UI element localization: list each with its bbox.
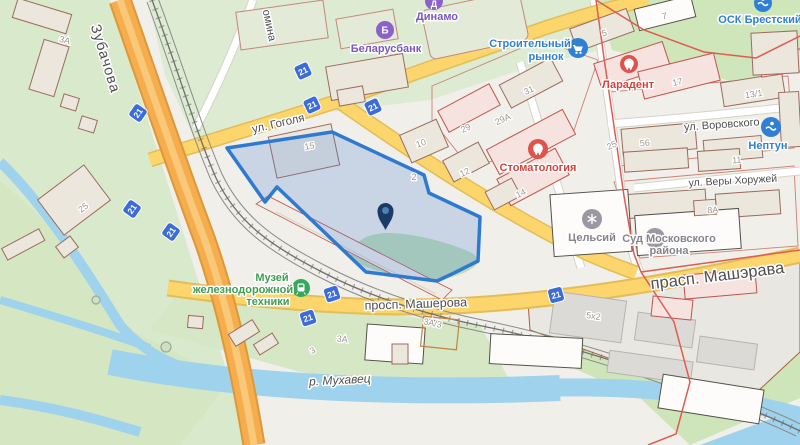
svg-text:ОСК Брестский: ОСК Брестский (718, 14, 800, 26)
svg-text:Нептун: Нептун (748, 140, 787, 152)
svg-text:Ларадент: Ларадент (602, 79, 655, 91)
svg-text:железнодорожной: железнодорожной (192, 284, 293, 296)
tooth-icon (528, 139, 548, 159)
snowflake-icon (582, 209, 602, 229)
stadium-icon: Д (431, 0, 438, 9)
svg-text:Беларусбанк: Беларусбанк (351, 43, 422, 55)
building-number: 8А (707, 205, 719, 216)
building-number: 3А (336, 334, 348, 345)
svg-text:техники: техники (246, 296, 289, 308)
building-number: 17 (671, 76, 683, 88)
svg-text:Динамо: Динамо (416, 11, 458, 23)
svg-text:района: района (649, 245, 689, 257)
building-number: 15 (304, 140, 316, 152)
svg-text:Б: Б (381, 26, 388, 37)
svg-text:Стоматология: Стоматология (500, 162, 577, 174)
building-number: 5х2 (586, 310, 602, 322)
svg-text:Суд Московского: Суд Московского (622, 233, 716, 245)
dental-icon (620, 55, 638, 73)
svg-text:Строительный: Строительный (489, 38, 571, 50)
market-cart-icon (568, 38, 588, 58)
building-number: 56 (639, 138, 650, 149)
svg-text:Цельсий: Цельсий (568, 232, 616, 244)
train-icon (292, 279, 310, 297)
map-canvas[interactable]: 21 21 21 21 21 21 21 21 21 3А 25 15 2 10… (0, 0, 800, 445)
svg-text:Музей: Музей (255, 272, 288, 284)
bank-icon: Б (376, 21, 394, 39)
swimmer-icon (761, 117, 781, 137)
building-number: 11 (732, 155, 742, 166)
building-number: 2 (411, 172, 416, 182)
svg-text:рынок: рынок (529, 51, 564, 63)
